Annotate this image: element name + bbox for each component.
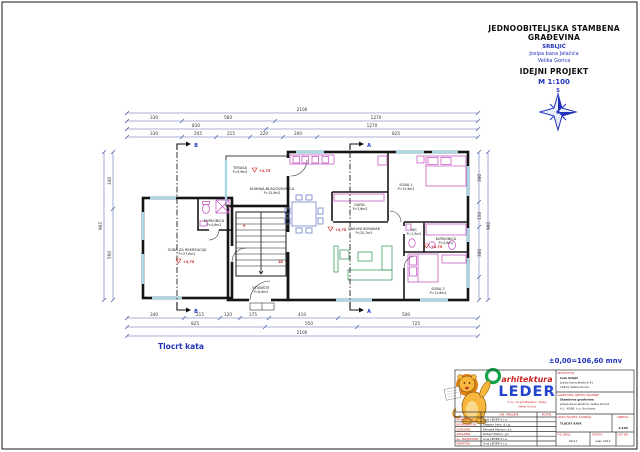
dim-text: 175: [249, 312, 257, 317]
dim-text: 300: [477, 249, 482, 257]
row-name: Ivna LEDER d.i.a.: [483, 437, 508, 441]
investor-city: 10410 Velika Gorica: [560, 385, 589, 389]
room-area-stubiste: P=6,6m2: [254, 290, 269, 294]
row-role: PROJEKTANT: [457, 418, 474, 422]
td-number-value: 24/11: [569, 439, 577, 443]
scale-value: 1:100: [618, 426, 627, 430]
dim-text: 830: [192, 123, 200, 128]
floorplan-drawing: JEDNOOBITELJSKA STAMBENA GRAĐEVINA SRBLJ…: [0, 0, 640, 452]
room-area-wc: P=1,5m2: [407, 232, 422, 236]
dim-text: 200: [294, 131, 302, 136]
dim-text: 330: [150, 131, 158, 136]
drawing-title-value: TLOCRT KATA: [560, 422, 582, 426]
bedroom2-furniture: [408, 254, 466, 282]
sheet-number-label: LIST BR.: [618, 433, 629, 437]
client-street: Josipa bana Jelačića: [528, 50, 578, 57]
dim-text: 120: [224, 312, 232, 317]
leder-lion-logo-icon: [444, 370, 499, 425]
brand-block: arhitektura LEDER d.o.o. za graditeljstv…: [498, 375, 555, 409]
stair-number-1: 9: [243, 224, 246, 228]
drawing-title-label: NAZIV NACRTA, SADRŽAJ:: [558, 414, 593, 419]
dim-text: 1270: [367, 123, 378, 128]
living-room-furniture: [334, 246, 392, 280]
dining-table: [285, 195, 323, 233]
dim-text: 825: [191, 321, 199, 326]
room-area-gard: P=3,6m2: [353, 207, 368, 211]
row-name: Ivna LEDER d.i.a.: [483, 418, 508, 422]
room-area-terasa: P=9,9m2: [233, 170, 248, 174]
dim-total-bottom: 2100: [297, 330, 308, 335]
dim-text: 215: [196, 312, 204, 317]
date-value: rujan 2011.: [595, 439, 612, 443]
interior-walls: [198, 153, 467, 299]
row-name: Mihaela Markov, a.t.: [483, 427, 512, 431]
bedroom1-furniture: [417, 156, 466, 186]
dim-text: 330: [150, 115, 158, 120]
room-area-soba2: P=11,6m2: [430, 291, 447, 295]
scale-label: MJERILO: [618, 415, 629, 419]
dim-text: 150: [477, 212, 482, 220]
level-terasa: +2,75: [259, 169, 271, 173]
row-role: KOORDINATOR: [457, 423, 477, 427]
date-label: DATUM:: [592, 433, 603, 437]
project-title-line1: JEDNOOBITELJSKA STAMBENA: [487, 24, 620, 33]
dim-text: 1270: [371, 115, 382, 120]
building-parcel: k.č. 4/568, k.o. Kurilovec: [560, 407, 596, 411]
row-name: Robert Zelton, g.t.: [483, 432, 510, 436]
room-area-kupaonica1: P=4,6m2: [207, 223, 222, 227]
row-name: Ivna LEDER d.i.a.: [483, 442, 508, 446]
drawing-caption: Tlocrt kata: [158, 342, 204, 351]
section-marker-b-top: B: [194, 143, 198, 149]
signature-column-header: POTPIS: [542, 413, 552, 417]
drawing-scale: M 1:100: [538, 78, 570, 86]
dim-total-top: 2100: [297, 107, 308, 112]
level-dnevni: +2,75: [335, 228, 347, 232]
section-marker-a-bottom: A: [367, 309, 371, 315]
dim-text: 500: [402, 312, 410, 317]
row-role: GL. PROJEKTANT: [457, 437, 479, 441]
compass-icon: S: [540, 88, 576, 130]
dim-text: 825: [392, 131, 400, 136]
brand-tagline: arhitektura: [501, 375, 552, 384]
row-role: SURADNIK: [457, 427, 471, 431]
dim-text: 560: [224, 115, 232, 120]
room-area-kuhinja: P=15,9m2: [264, 191, 281, 195]
dim-text: 215: [227, 131, 235, 136]
project-title-line2: GRAĐEVINA: [528, 33, 580, 42]
dim-text: 205: [194, 131, 202, 136]
dim-text: 560: [107, 251, 112, 259]
stair-number-2: 18: [278, 260, 283, 264]
level-rekreacija: +2,75: [183, 260, 195, 264]
investor-label: INVESTITOR:: [558, 371, 575, 375]
client-city: Velika Gorica: [538, 58, 571, 64]
row-name: Stjepan Leko, d.i.g.: [483, 423, 511, 427]
name-column-header: IME I PREZIME: [499, 413, 518, 417]
investor-street: Josipa bana Jelačića 91: [559, 381, 593, 385]
investor-name: Ivan Srbljić: [560, 376, 579, 380]
building-type: Stambena građevina: [560, 398, 594, 402]
level-kupaonica2: +2,75: [431, 245, 443, 249]
building-label: GRAĐEVINA, MJESTO GRADNJE:: [558, 393, 600, 397]
dim-text: 300: [477, 174, 482, 182]
brand-name: LEDER: [498, 384, 555, 400]
datum-note: ±0,00=106,60 mnv: [549, 357, 623, 365]
dim-text: 340: [150, 312, 158, 317]
title-header: JEDNOOBITELJSKA STAMBENA GRAĐEVINA SRBLJ…: [487, 24, 620, 86]
kitchen-counter: [290, 155, 387, 201]
staircase: 9 18: [236, 212, 286, 276]
client-name: SRBLJIĆ: [542, 43, 566, 50]
row-role: DIREKTOR: [457, 442, 471, 446]
dim-text: 725: [412, 321, 420, 326]
doors: [209, 158, 416, 310]
dim-text: 410: [298, 312, 306, 317]
room-area-soba1: P=15,9m2: [398, 187, 415, 191]
dim-text: 220: [260, 131, 268, 136]
section-marker-a-top: A: [367, 143, 371, 149]
dim-left-total: 905: [98, 222, 103, 230]
room-area-rekreacija: P=27,6m2: [179, 252, 196, 256]
brand-subline2: Velika Gorica: [518, 405, 536, 409]
td-number-label: T.D. BROJ:: [557, 433, 572, 437]
row-role: SURADNIK: [457, 432, 471, 436]
dim-right-total: 900: [486, 222, 491, 230]
drawing-sheet: JEDNOOBITELJSKA STAMBENA GRAĐEVINA SRBLJ…: [0, 0, 640, 452]
room-area-dnevni: P=20,7m2: [356, 231, 373, 235]
building-address: Josipa bana Jelačića, Velika Gorica: [559, 402, 609, 406]
dim-text: 550: [305, 321, 313, 326]
brand-subline1: d.o.o. za graditeljstvo i dizajn: [507, 400, 547, 404]
dim-text: 340: [107, 177, 112, 185]
project-phase: IDEJNI PROJEKT: [520, 67, 589, 76]
